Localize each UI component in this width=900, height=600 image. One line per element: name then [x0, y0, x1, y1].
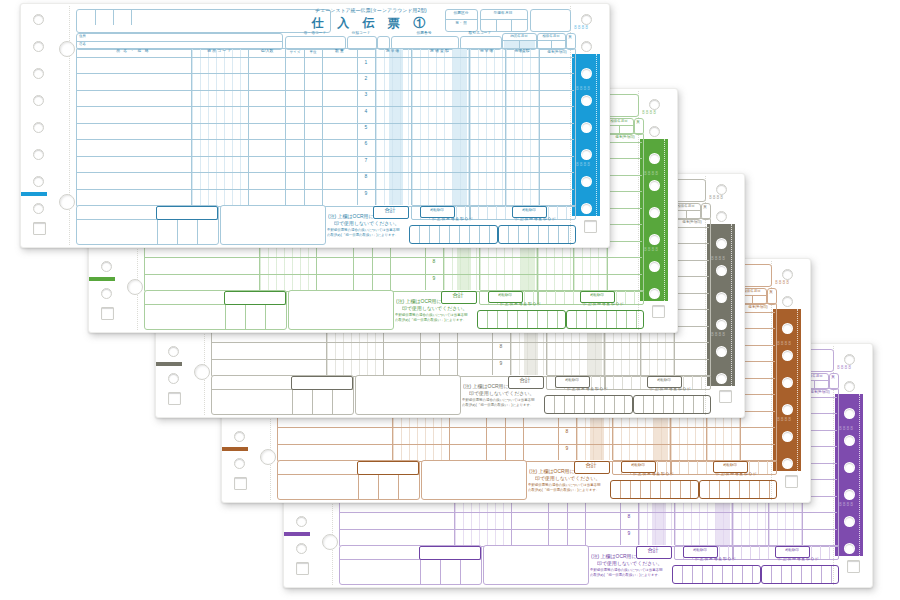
divider	[265, 304, 266, 329]
offset-amount-tag	[775, 546, 810, 558]
divider	[460, 559, 461, 584]
cost-total-digit-boxes	[409, 225, 498, 244]
divider	[440, 559, 441, 584]
grand-total-tag	[574, 461, 610, 474]
memo-box	[288, 290, 394, 330]
offset-amount-tag	[647, 376, 682, 388]
offset-amount-tag	[580, 291, 615, 303]
divider	[225, 304, 226, 329]
footer-stamp-cell	[224, 291, 286, 305]
divider	[312, 389, 313, 414]
product-photo-stage: 8888 8888 8888 チェーンストア統一伝票(ターンアラウンド用2型) …	[0, 0, 900, 600]
price-total-digit-boxes	[699, 480, 777, 499]
footer-stamp-cell	[156, 206, 218, 220]
memo-box	[355, 375, 461, 415]
divider	[197, 219, 198, 244]
divider	[420, 559, 421, 584]
form-footer: (注) 上欄はOCR用につき朱肉 印で使用しないでください。 不鮮明伝票等の場合…	[21, 4, 609, 247]
memo-box	[220, 205, 326, 245]
offset-amount-tag	[713, 461, 748, 473]
footer-stamp-cell	[291, 376, 353, 390]
divider	[157, 219, 158, 244]
cost-total-digit-boxes	[477, 310, 566, 329]
footer-stamp-cell	[357, 461, 419, 475]
offset-amount-tag	[621, 461, 656, 473]
grand-total-tag	[508, 376, 544, 389]
divider	[292, 389, 293, 414]
price-total-digit-boxes	[566, 310, 644, 329]
divider	[332, 389, 333, 414]
cost-total-digit-boxes	[610, 480, 699, 499]
offset-amount-tag	[512, 206, 547, 218]
footer-stamp-cell	[419, 546, 481, 560]
grand-total-tag	[441, 291, 477, 304]
copy-1-cyan: 8888 8888 8888 チェーンストア統一伝票(ターンアラウンド用2型) …	[20, 3, 610, 248]
grand-total-tag	[373, 206, 409, 219]
cost-total-digit-boxes	[544, 395, 633, 414]
divider	[398, 474, 399, 499]
offset-amount-tag	[555, 376, 590, 388]
offset-amount-tag	[683, 546, 718, 558]
price-total-digit-boxes	[761, 565, 839, 584]
divider	[245, 304, 246, 329]
divider	[378, 474, 379, 499]
offset-amount-tag	[488, 291, 523, 303]
cost-total-digit-boxes	[672, 565, 761, 584]
price-total-digit-boxes	[633, 395, 711, 414]
divider	[177, 219, 178, 244]
memo-box	[483, 545, 589, 585]
offset-amount-tag	[420, 206, 455, 218]
price-total-digit-boxes	[498, 225, 576, 244]
grand-total-tag	[636, 546, 672, 559]
divider	[358, 474, 359, 499]
memo-box	[421, 460, 527, 500]
